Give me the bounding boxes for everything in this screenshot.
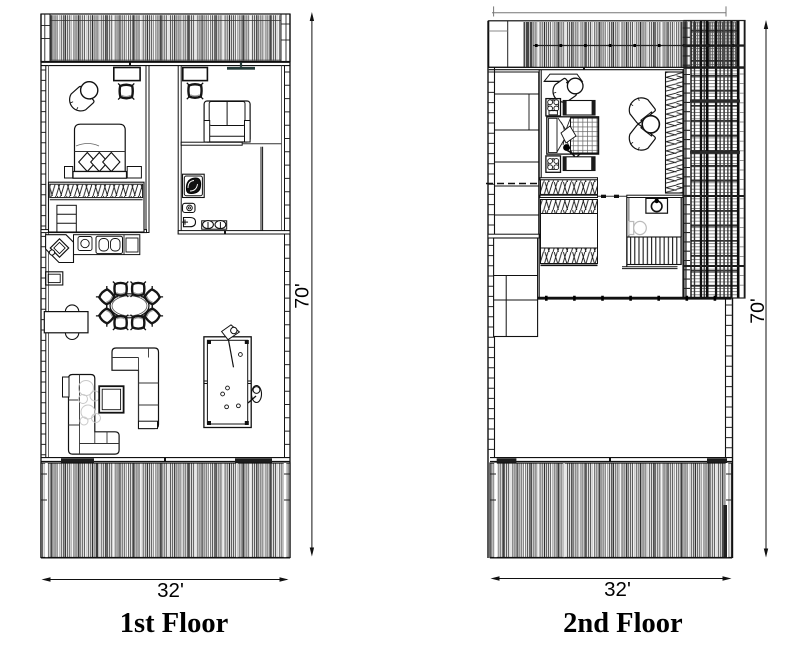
svg-text:32': 32' bbox=[604, 578, 631, 601]
svg-text:1st Floor: 1st Floor bbox=[120, 608, 229, 639]
svg-text:70': 70' bbox=[292, 283, 314, 308]
svg-text:2nd Floor: 2nd Floor bbox=[563, 608, 683, 639]
svg-text:70': 70' bbox=[747, 298, 769, 323]
svg-text:32': 32' bbox=[157, 579, 184, 602]
